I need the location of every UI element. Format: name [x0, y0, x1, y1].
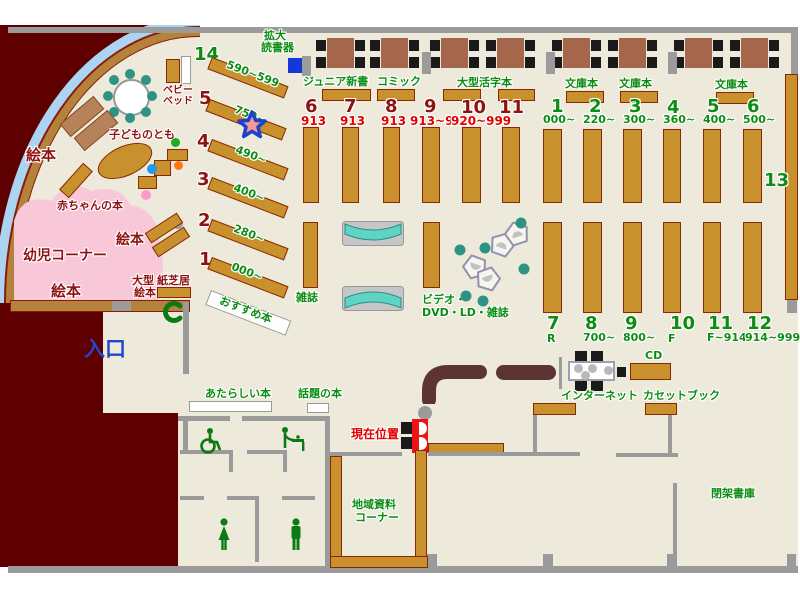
right-stack — [743, 129, 762, 203]
right-stack — [663, 129, 681, 203]
section-comic: コミック — [377, 76, 421, 87]
kamishibai-label: 紙芝居 — [157, 275, 190, 286]
wall-right-top — [791, 27, 798, 77]
baby-bed-label-1: ベビー — [163, 86, 193, 96]
pillar-round-center — [418, 406, 432, 420]
round-table-chair — [141, 75, 151, 85]
toilet-wall — [255, 500, 259, 562]
cassette-desk-wall-v — [668, 415, 672, 453]
chair — [647, 57, 657, 68]
chair — [401, 422, 412, 434]
section-large-print: 大型活字本 — [457, 77, 512, 88]
chair — [525, 40, 535, 51]
cassette-label: カセットブック — [643, 390, 720, 401]
chair — [591, 351, 603, 361]
magnifier-label-1: 拡大 — [264, 30, 286, 41]
section-bunko-2: 文庫本 — [619, 78, 652, 89]
chair — [730, 40, 740, 51]
pillar-top-2 — [546, 52, 555, 74]
listening-desk-shelf — [533, 403, 576, 415]
stool-orange — [174, 161, 183, 170]
chair — [469, 40, 479, 51]
phone-icon — [162, 300, 184, 324]
pillar-top-1 — [422, 52, 431, 74]
round-table-chair — [141, 107, 151, 117]
picture-books-label-2: 絵本 — [116, 233, 144, 247]
right-2-range: 220~ — [583, 114, 615, 125]
pillar-bottom-1 — [427, 554, 437, 566]
chair — [409, 57, 419, 68]
right-7-num: 7 — [547, 315, 560, 333]
seat-pad — [604, 366, 613, 375]
table-top — [741, 38, 768, 68]
right-stack — [703, 129, 721, 203]
center-stack — [422, 127, 440, 203]
baby-bed-shelf — [166, 59, 180, 83]
picture-books-label-3: 絵本 — [51, 284, 81, 299]
man-icon — [287, 518, 305, 552]
counter-divider — [559, 357, 562, 389]
topic-books-label: 話題の本 — [298, 388, 342, 399]
right-11-range: F~914 — [707, 332, 747, 343]
reading-table — [608, 36, 657, 72]
chair — [401, 437, 412, 449]
center-stack — [342, 127, 359, 203]
section-bunko-3: 文庫本 — [715, 79, 748, 90]
local-shelf-left — [330, 456, 342, 557]
stool-pink — [141, 190, 151, 200]
seat-pad — [581, 371, 590, 380]
right-5-range: 400~ — [703, 114, 735, 125]
center-stack — [303, 127, 319, 203]
toilet-wall — [283, 450, 287, 472]
chair — [730, 57, 740, 68]
chair — [370, 57, 380, 68]
table-top — [441, 38, 468, 68]
chair — [486, 57, 496, 68]
right-8-range: 700~ — [583, 332, 615, 343]
cd-label: CD — [645, 350, 662, 361]
chair — [430, 40, 440, 51]
chair — [486, 40, 496, 51]
center-8-range: 913 — [381, 115, 406, 127]
chair — [575, 351, 587, 361]
library-floor-map: 子どものとも 絵本 赤ちゃんの本 絵本 幼児コーナー 絵本 大型 絵本 紙芝居 … — [0, 0, 800, 600]
seat-pad — [588, 364, 597, 373]
right-1-range: 000~ — [543, 114, 575, 125]
entrance-label: 入口 — [84, 339, 126, 360]
chair — [713, 40, 723, 51]
av-label-2: DVD・LD・雑誌 — [422, 307, 509, 318]
study-carrels — [440, 212, 535, 307]
step-shelf — [138, 176, 157, 189]
baby-change-icon — [278, 426, 306, 452]
round-table-chair — [109, 75, 119, 85]
right-9-range: 800~ — [623, 332, 655, 343]
pillar-top-0 — [302, 56, 311, 76]
right-stack — [543, 222, 562, 313]
wall-top — [8, 27, 798, 33]
reading-table — [430, 36, 479, 72]
toilet-wall — [229, 450, 233, 472]
right-stack — [623, 129, 642, 203]
large-picture-books-label-1: 大型 — [132, 275, 154, 286]
magazine-rack — [342, 221, 404, 246]
local-shelf-right — [415, 450, 427, 557]
chair — [713, 57, 723, 68]
av-stack — [423, 222, 440, 288]
chair — [674, 40, 684, 51]
chair — [409, 40, 419, 51]
toilet-wall — [282, 496, 315, 500]
right-stack — [583, 129, 602, 203]
chair — [591, 40, 601, 51]
table-top — [381, 38, 408, 68]
reading-table — [552, 36, 601, 72]
local-shelf-bottom — [330, 556, 428, 568]
center-7-range: 913 — [340, 115, 365, 127]
wheelchair-icon — [197, 427, 223, 454]
reading-table — [370, 36, 419, 72]
toilet-wall — [242, 416, 330, 421]
reading-table — [316, 36, 365, 72]
chair — [552, 40, 562, 51]
topic-books-shelf — [307, 403, 329, 413]
kids-door-gap — [112, 301, 131, 311]
right-3-range: 300~ — [623, 114, 655, 125]
chair — [608, 57, 618, 68]
chair — [370, 40, 380, 51]
local-materials-label-1: 地域資料 — [352, 499, 396, 510]
picture-books-label-1: 絵本 — [26, 148, 56, 163]
table-top — [685, 38, 712, 68]
pillar-bottom-2 — [543, 554, 553, 566]
woman-icon — [215, 518, 233, 552]
table-top — [497, 38, 524, 68]
right-10-range: F — [668, 333, 676, 344]
exterior-bottom-left — [0, 413, 178, 567]
right-stack — [623, 222, 642, 313]
right-10-num: 10 — [670, 315, 695, 333]
pillar-top-3 — [668, 52, 677, 74]
wall-shelf-13-label: 13 — [764, 172, 789, 190]
center-stack — [383, 127, 400, 203]
center-stack — [502, 127, 520, 203]
toddler-corner-label: 幼児コーナー — [23, 249, 107, 263]
right-stack — [743, 222, 762, 313]
chair — [316, 57, 326, 68]
local-materials-label-2: コーナー — [355, 512, 399, 523]
internet-label: インターネット — [561, 390, 638, 401]
listening-desk-wall-v — [533, 415, 537, 455]
round-table-chair — [103, 91, 113, 101]
cassette-desk-shelf — [645, 403, 677, 415]
right-4-range: 360~ — [663, 114, 695, 125]
cassette-desk-wall-h — [616, 453, 678, 457]
star-icon — [237, 110, 267, 140]
table-top — [327, 38, 354, 68]
new-books-shelf — [189, 401, 272, 412]
right-12-range: 914~999 — [745, 332, 800, 343]
closed-stacks-label: 閉架書庫 — [711, 488, 755, 499]
right-6-range: 500~ — [743, 114, 775, 125]
table-top — [563, 38, 590, 68]
magnifier-label-2: 読書器 — [261, 42, 294, 53]
chair — [355, 57, 365, 68]
chair — [769, 40, 779, 51]
reading-table — [730, 36, 779, 72]
table-top — [619, 38, 646, 68]
magazine-label: 雑誌 — [296, 292, 318, 303]
center-6-range: 913 — [301, 115, 326, 127]
pillar-bottom-4 — [787, 554, 796, 566]
wall-stacks-divider — [673, 483, 677, 567]
baby-bed — [181, 56, 191, 84]
right-7-range: R — [547, 333, 555, 344]
round-table-chair — [125, 113, 135, 123]
stool-blue — [147, 164, 157, 174]
wall-local-room-2 — [428, 452, 534, 456]
reading-table — [486, 36, 535, 72]
chair — [608, 40, 618, 51]
chair — [769, 57, 779, 68]
service-counter — [408, 358, 568, 404]
baby-books-label: 赤ちゃんの本 — [57, 200, 123, 211]
stool-green — [171, 138, 180, 147]
pillar-right — [787, 300, 797, 313]
magazine-stack — [303, 222, 318, 288]
chair — [355, 40, 365, 51]
chair — [617, 367, 626, 377]
kamishibai-shelf — [157, 287, 191, 298]
section-bunko-1: 文庫本 — [565, 78, 598, 89]
right-stack — [583, 222, 602, 313]
chair — [430, 57, 440, 68]
round-table-chair — [147, 91, 157, 101]
chair — [591, 57, 601, 68]
chair — [316, 40, 326, 51]
right-stack — [703, 222, 721, 313]
listening-desk-wall-h — [533, 452, 580, 456]
reading-table — [674, 36, 723, 72]
right-stack — [663, 222, 681, 313]
right-stack — [543, 129, 562, 203]
toilet-wall — [180, 496, 204, 500]
round-table-chair — [125, 69, 135, 79]
baby-bed-label-2: ベッド — [163, 97, 193, 107]
center-10-range: 920~999 — [451, 115, 511, 127]
chair — [469, 57, 479, 68]
chair — [647, 40, 657, 51]
current-location-label: 現在位置 — [351, 428, 399, 440]
toilet-wall — [183, 421, 188, 453]
chair — [525, 57, 535, 68]
new-books-label: あたらしい本 — [205, 388, 271, 399]
large-picture-books-label-2: 絵本 — [134, 287, 156, 298]
center-stack — [462, 127, 481, 203]
cd-shelf — [630, 363, 671, 380]
magnifier-device — [288, 58, 302, 73]
toilet-wall — [325, 416, 330, 568]
section-junior-shinsho: ジュニア新書 — [303, 76, 368, 87]
magazine-rack — [342, 286, 404, 311]
kodomo-no-tomo-label: 子どものとも — [109, 129, 175, 140]
